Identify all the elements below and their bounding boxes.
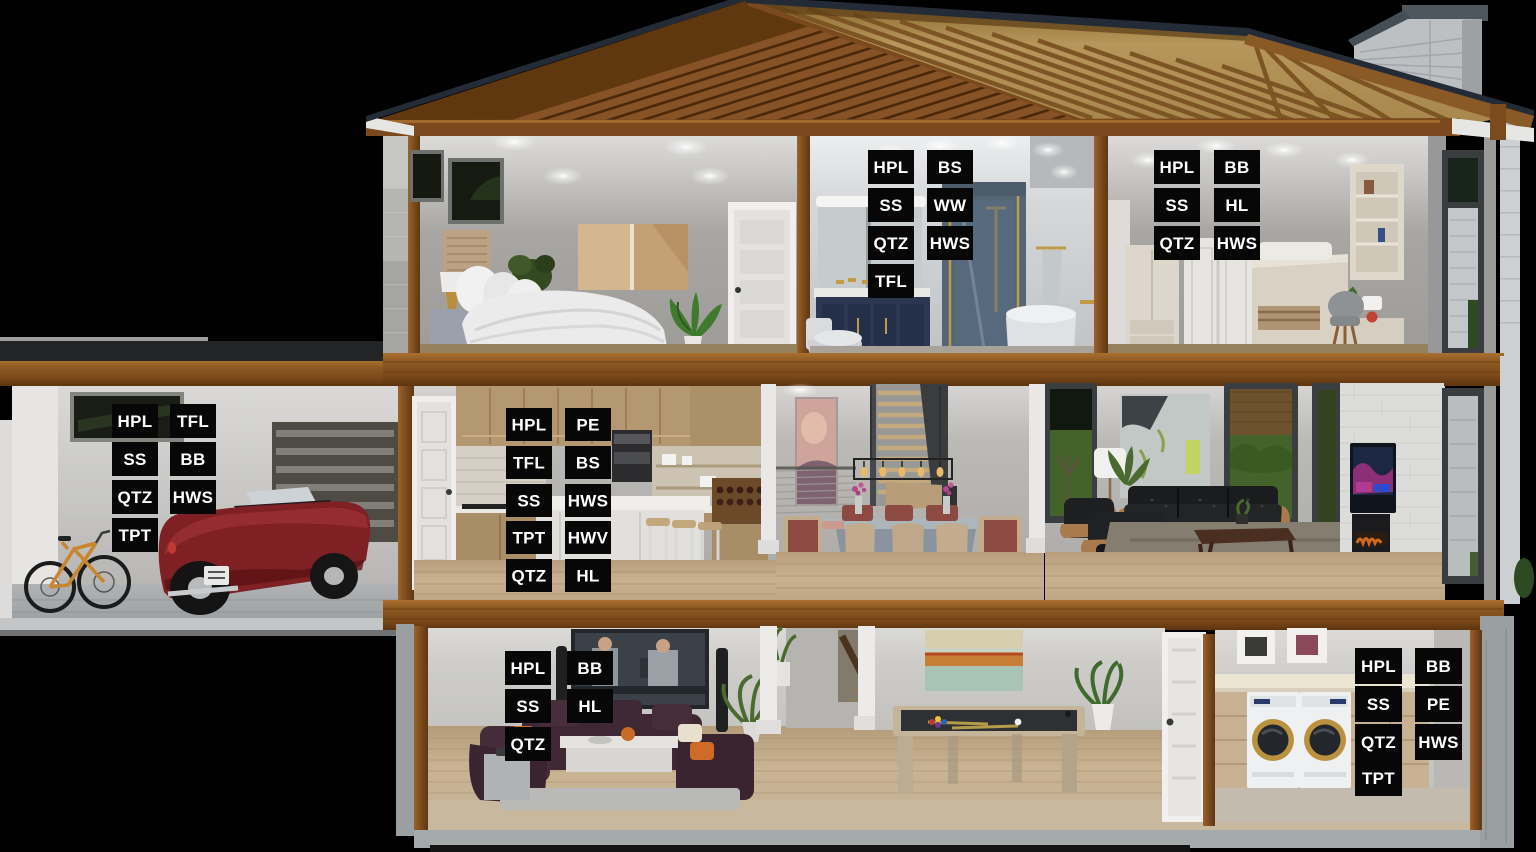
svg-text:BB: BB	[1224, 158, 1249, 177]
svg-text:HPL: HPL	[1361, 657, 1396, 676]
svg-text:HWS: HWS	[1217, 234, 1258, 253]
svg-text:TPT: TPT	[118, 526, 151, 545]
svg-text:SS: SS	[123, 450, 146, 469]
svg-text:SS: SS	[1165, 196, 1188, 215]
svg-text:TFL: TFL	[875, 272, 907, 291]
svg-text:HWS: HWS	[568, 492, 609, 511]
svg-text:TFL: TFL	[513, 454, 545, 473]
svg-text:WW: WW	[934, 196, 967, 215]
svg-text:BS: BS	[576, 454, 600, 473]
svg-text:HWV: HWV	[568, 529, 609, 548]
svg-text:BS: BS	[938, 158, 962, 177]
svg-text:QTZ: QTZ	[1160, 234, 1195, 253]
svg-text:HWS: HWS	[930, 234, 971, 253]
svg-text:HPL: HPL	[118, 412, 153, 431]
svg-text:HPL: HPL	[511, 659, 546, 678]
svg-text:PE: PE	[1427, 695, 1450, 714]
svg-text:HPL: HPL	[512, 416, 547, 435]
svg-text:HWS: HWS	[1418, 733, 1459, 752]
svg-text:HL: HL	[576, 567, 599, 586]
svg-text:SS: SS	[879, 196, 902, 215]
svg-text:PE: PE	[576, 416, 599, 435]
svg-text:QTZ: QTZ	[512, 567, 547, 586]
svg-text:BB: BB	[1426, 657, 1451, 676]
svg-text:HPL: HPL	[874, 158, 909, 177]
svg-text:TPT: TPT	[512, 529, 545, 548]
svg-text:QTZ: QTZ	[118, 488, 153, 507]
svg-text:TPT: TPT	[1362, 769, 1395, 788]
svg-text:TFL: TFL	[177, 412, 209, 431]
svg-text:QTZ: QTZ	[1361, 733, 1396, 752]
svg-text:QTZ: QTZ	[874, 234, 909, 253]
svg-text:HL: HL	[1225, 196, 1248, 215]
svg-text:QTZ: QTZ	[511, 735, 546, 754]
svg-text:SS: SS	[516, 697, 539, 716]
svg-text:BB: BB	[180, 450, 205, 469]
svg-text:HPL: HPL	[1160, 158, 1195, 177]
svg-text:BB: BB	[577, 659, 602, 678]
svg-text:HWS: HWS	[173, 488, 214, 507]
svg-text:SS: SS	[1367, 695, 1390, 714]
svg-text:HL: HL	[578, 697, 601, 716]
svg-text:SS: SS	[517, 492, 540, 511]
